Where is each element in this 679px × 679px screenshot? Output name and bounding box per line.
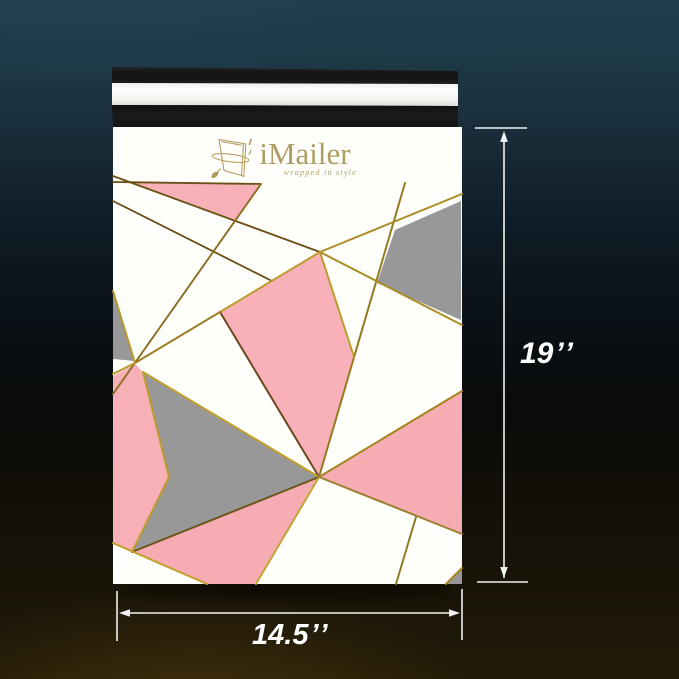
svg-text:14.5’’: 14.5’’ bbox=[252, 619, 328, 651]
svg-text:19’’: 19’’ bbox=[520, 337, 574, 370]
svg-text:wrapped in style: wrapped in style bbox=[284, 168, 357, 177]
svg-text:iMailer: iMailer bbox=[259, 136, 351, 171]
